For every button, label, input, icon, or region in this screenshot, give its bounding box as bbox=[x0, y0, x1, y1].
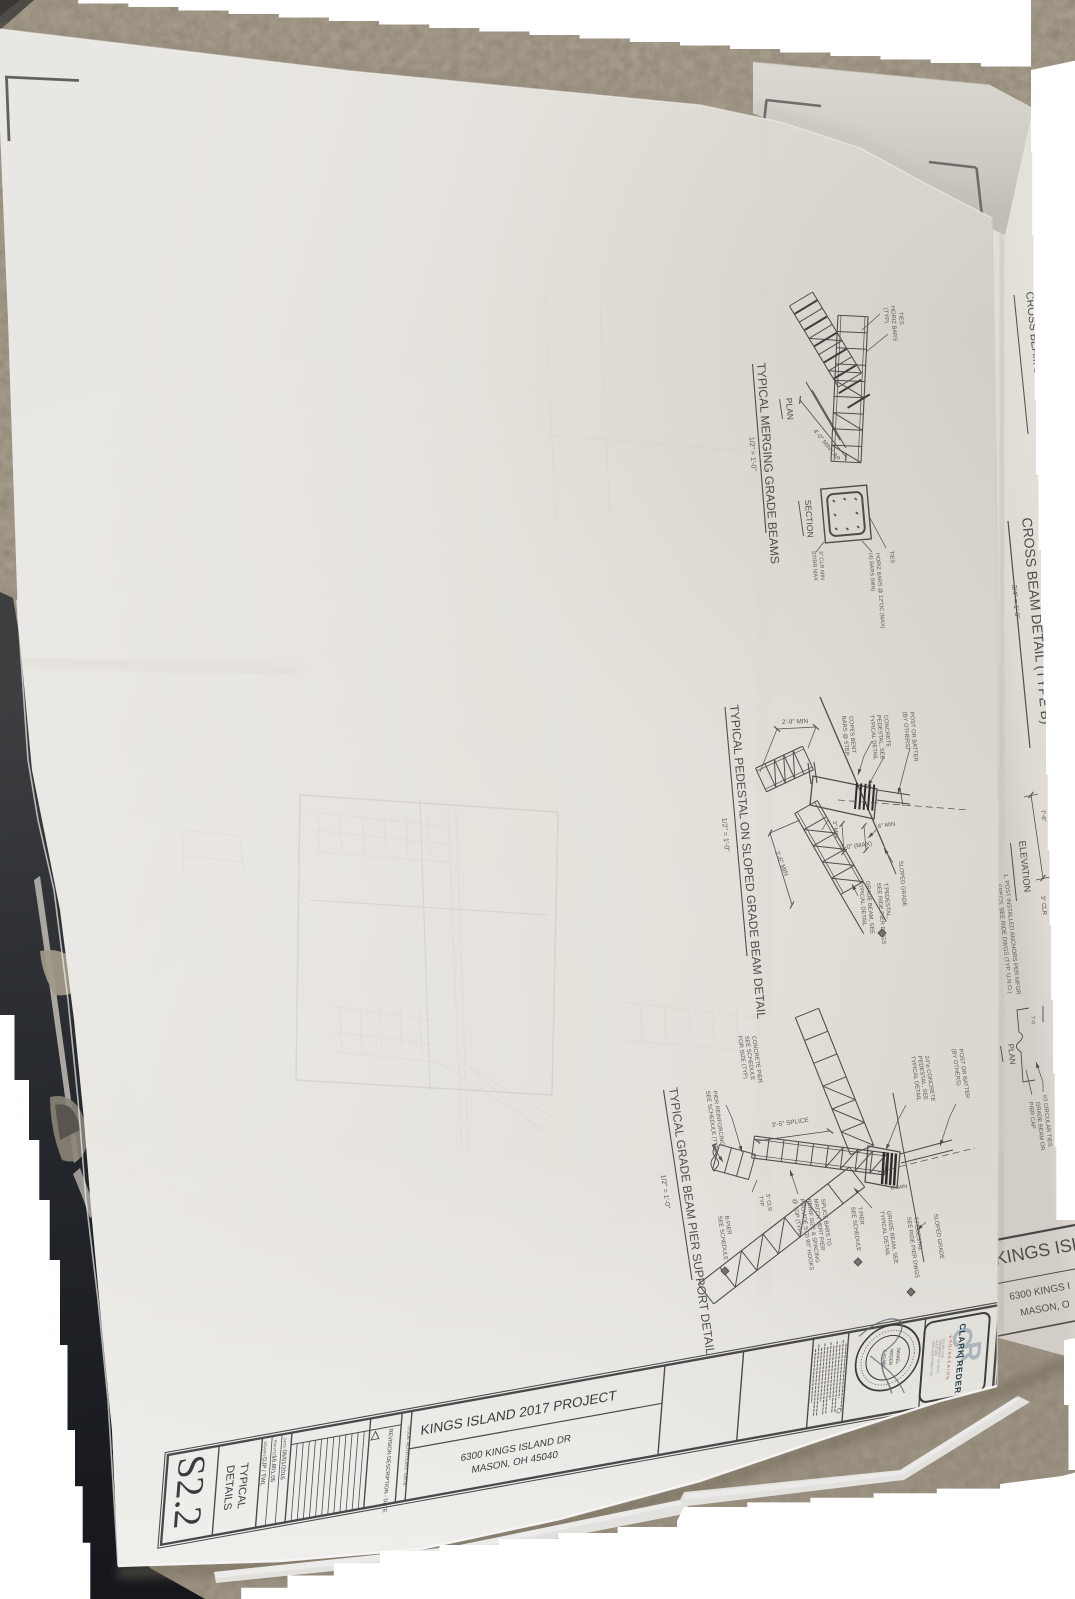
svg-text:DATE:: DATE: bbox=[282, 1437, 288, 1449]
svg-text:PLAN: PLAN bbox=[784, 397, 796, 420]
svg-text:TIES: TIES bbox=[897, 312, 904, 325]
svg-text:2'-9" MIN: 2'-9" MIN bbox=[782, 718, 809, 726]
svg-text:S2.2: S2.2 bbox=[165, 1451, 215, 1531]
svg-text:7'-6": 7'-6" bbox=[1039, 810, 1046, 823]
svg-text:(TYP): (TYP) bbox=[882, 308, 889, 324]
svg-text:DATE: DATE bbox=[401, 1473, 408, 1488]
svg-text:7'-0: 7'-0 bbox=[1029, 1016, 1036, 1025]
svg-text:TIES: TIES bbox=[888, 551, 895, 564]
